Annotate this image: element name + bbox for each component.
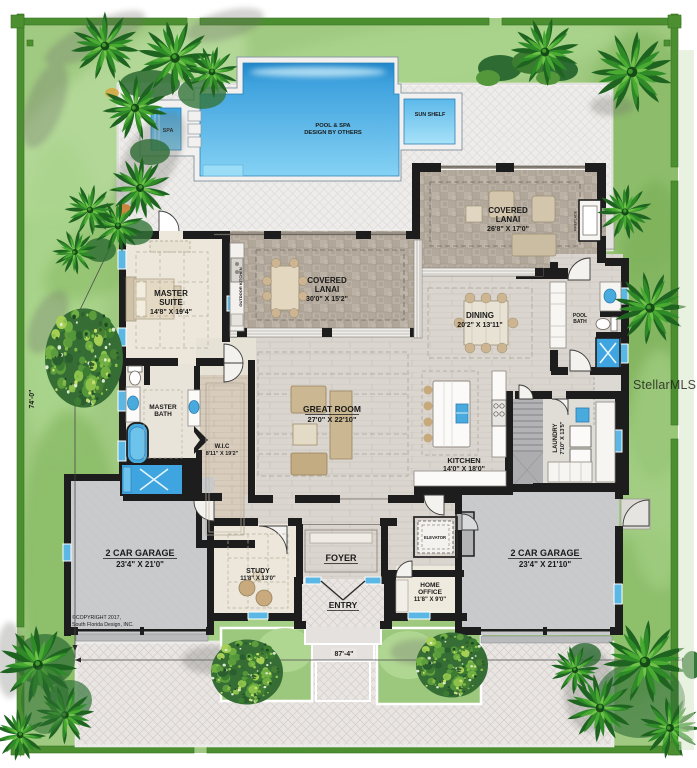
svg-text:27'0" X 22'10": 27'0" X 22'10" bbox=[307, 415, 356, 424]
svg-text:11'8" X 13'0": 11'8" X 13'0" bbox=[240, 576, 276, 582]
svg-text:87'-4": 87'-4" bbox=[335, 651, 354, 658]
svg-text:COVERED: COVERED bbox=[488, 206, 528, 215]
svg-text:14'8" X 19'4": 14'8" X 19'4" bbox=[150, 309, 192, 316]
svg-text:BATH: BATH bbox=[154, 411, 172, 418]
svg-text:POOL & SPA: POOL & SPA bbox=[315, 123, 351, 129]
svg-text:STUDY: STUDY bbox=[246, 568, 270, 575]
svg-text:LANAI: LANAI bbox=[315, 285, 339, 294]
svg-text:8'11" X 19'2": 8'11" X 19'2" bbox=[206, 451, 239, 457]
svg-text:FIREPLACE: FIREPLACE bbox=[574, 210, 578, 231]
svg-text:26'8" X 17'0": 26'8" X 17'0" bbox=[487, 226, 529, 233]
svg-text:23'4" X 21'0": 23'4" X 21'0" bbox=[116, 560, 164, 569]
svg-text:23'4" X 21'10": 23'4" X 21'10" bbox=[519, 560, 572, 569]
svg-text:2 CAR GARAGE: 2 CAR GARAGE bbox=[105, 548, 174, 558]
svg-text:KITCHEN: KITCHEN bbox=[447, 456, 480, 465]
svg-text:FOYER: FOYER bbox=[325, 553, 357, 563]
svg-text:11'8" X 9'0": 11'8" X 9'0" bbox=[414, 597, 446, 603]
svg-text:MASTER: MASTER bbox=[154, 289, 188, 298]
svg-text:SUN SHELF: SUN SHELF bbox=[415, 112, 446, 118]
svg-text:ENTRY: ENTRY bbox=[329, 600, 358, 610]
svg-text:LANAI: LANAI bbox=[496, 215, 520, 224]
svg-text:20'2" X 13'11": 20'2" X 13'11" bbox=[457, 322, 502, 329]
svg-text:OUTDOOR KITCHEN: OUTDOOR KITCHEN bbox=[238, 267, 243, 306]
svg-text:GREAT ROOM: GREAT ROOM bbox=[303, 404, 361, 414]
svg-text:South Florida Design, INC.: South Florida Design, INC. bbox=[72, 622, 134, 628]
svg-text:COVERED: COVERED bbox=[307, 276, 347, 285]
svg-text:74'-0": 74'-0" bbox=[29, 390, 36, 409]
svg-text:DINING: DINING bbox=[466, 311, 494, 320]
svg-text:OFFICE: OFFICE bbox=[418, 589, 442, 596]
svg-text:ELEVATOR: ELEVATOR bbox=[424, 535, 446, 540]
svg-text:14'0" X 18'0": 14'0" X 18'0" bbox=[443, 466, 485, 473]
svg-text:©COPYRIGHT 2017,: ©COPYRIGHT 2017, bbox=[72, 614, 121, 621]
svg-text:HOME: HOME bbox=[420, 582, 440, 589]
svg-text:DESIGN BY OTHERS: DESIGN BY OTHERS bbox=[304, 130, 362, 136]
svg-text:MASTER: MASTER bbox=[149, 404, 177, 411]
svg-text:BATH: BATH bbox=[573, 319, 587, 325]
svg-text:30'0" X 15'2": 30'0" X 15'2" bbox=[306, 296, 348, 303]
svg-text:StellarMLS: StellarMLS bbox=[633, 378, 696, 392]
svg-text:LAUNDRY: LAUNDRY bbox=[553, 423, 559, 452]
svg-text:W.I.C: W.I.C bbox=[215, 444, 230, 450]
svg-text:SUITE: SUITE bbox=[159, 298, 183, 307]
svg-text:7'10" X 13'5": 7'10" X 13'5" bbox=[560, 421, 566, 454]
svg-text:2 CAR GARAGE: 2 CAR GARAGE bbox=[510, 548, 579, 558]
